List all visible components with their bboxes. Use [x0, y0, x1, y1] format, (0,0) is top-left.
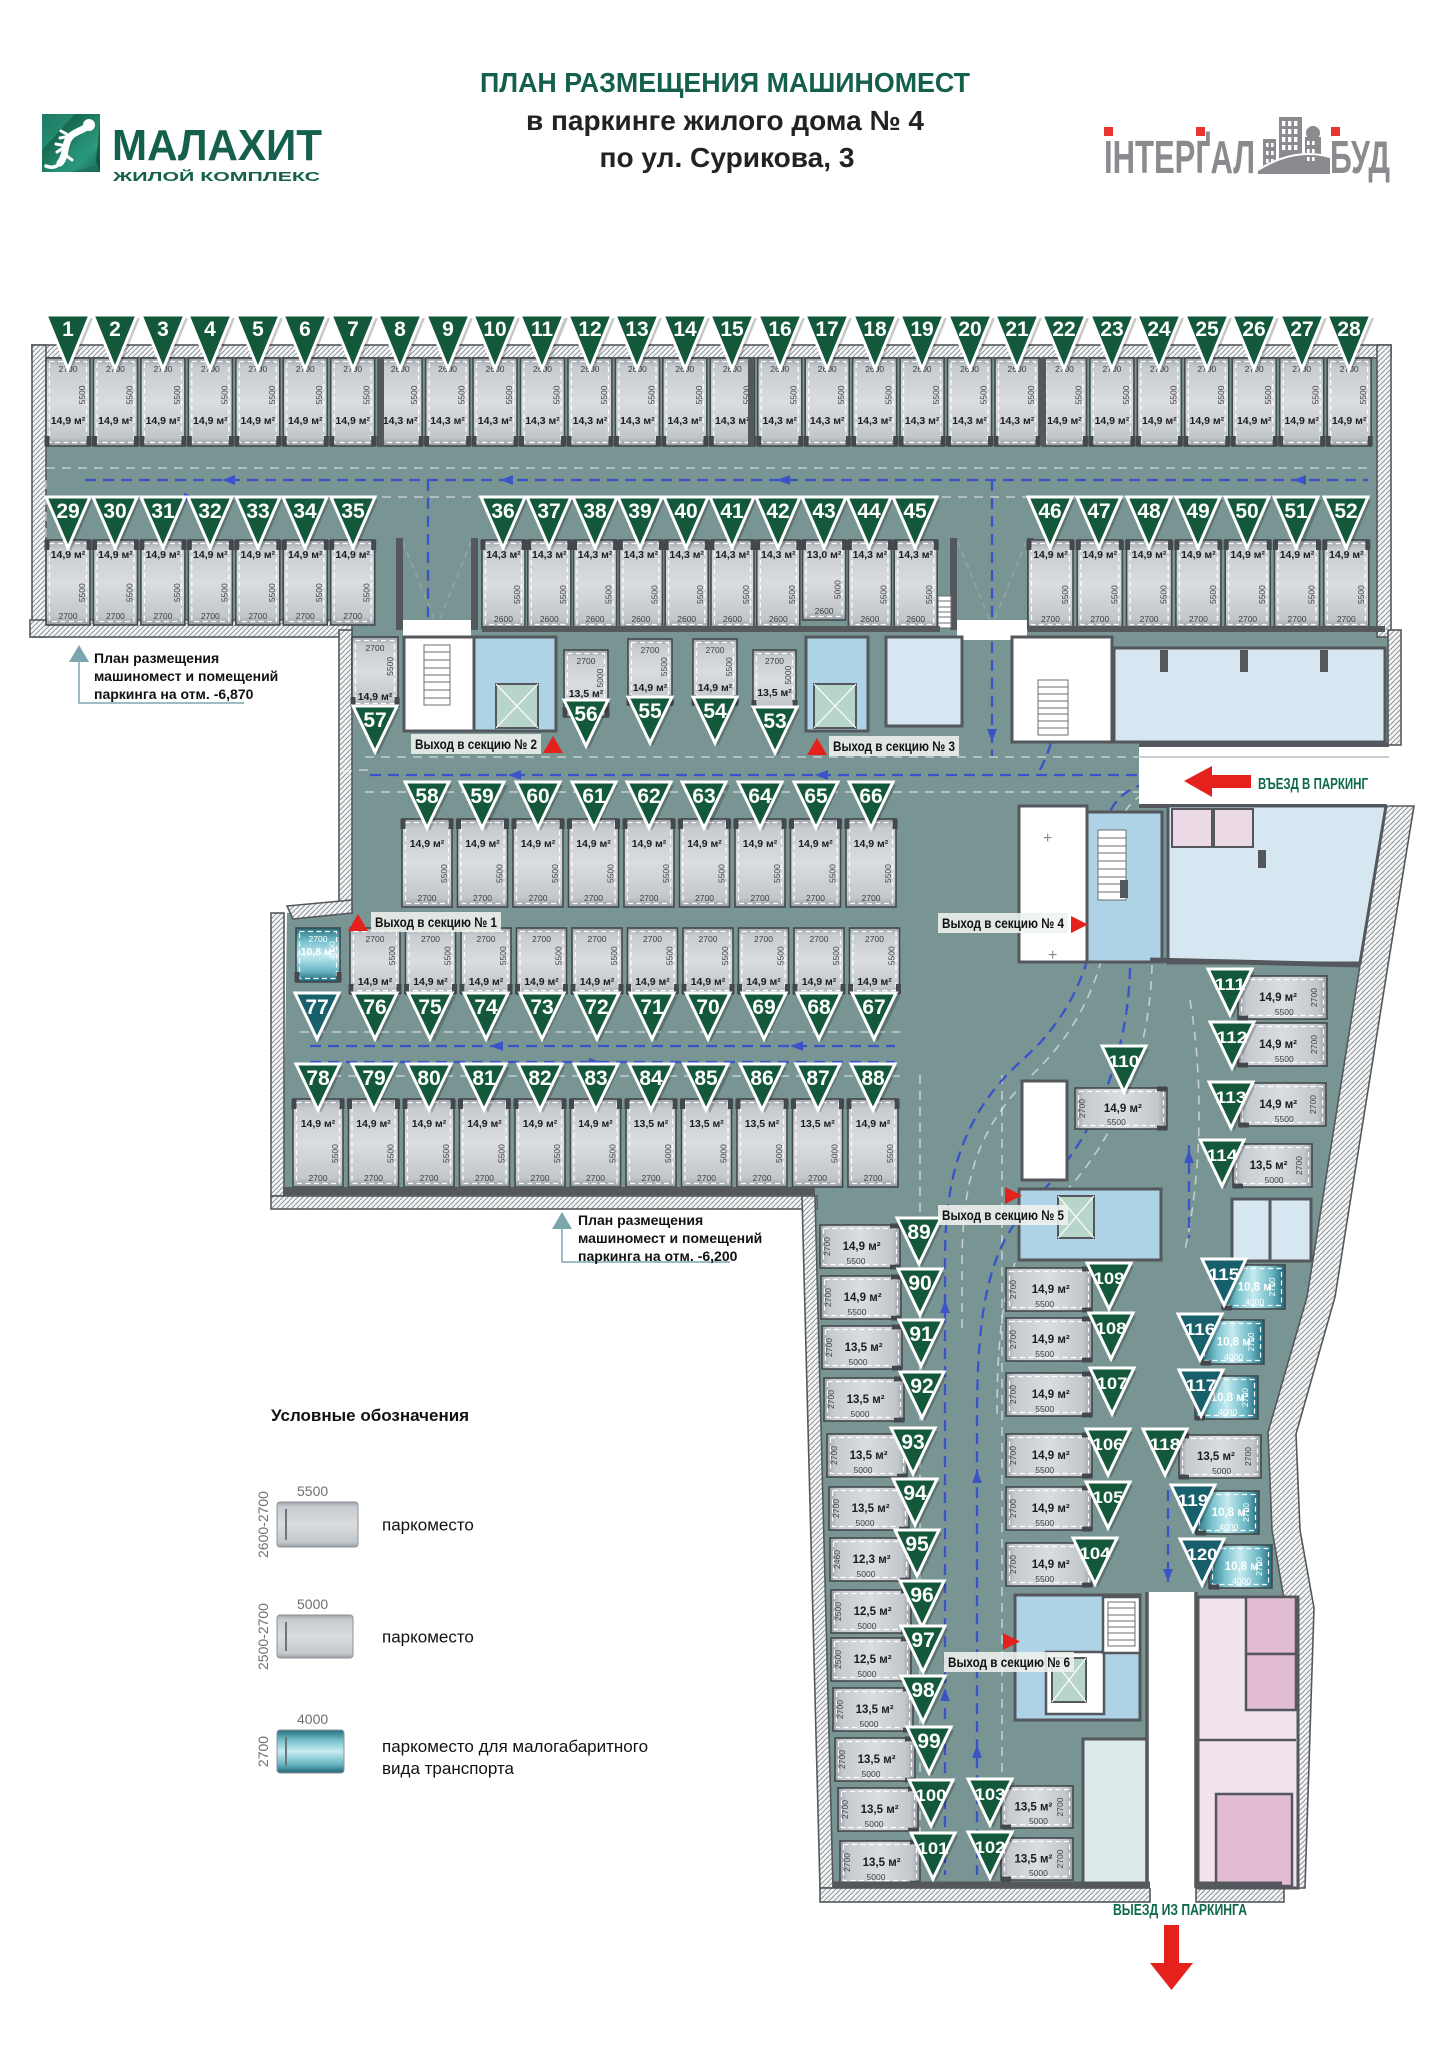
svg-text:14,3 м²: 14,3 м² [532, 549, 567, 561]
svg-text:57: 57 [363, 709, 386, 732]
svg-text:в паркинге жилого дома № 4: в паркинге жилого дома № 4 [526, 105, 924, 136]
svg-text:14: 14 [673, 318, 697, 341]
svg-text:46: 46 [1038, 500, 1061, 523]
svg-text:91: 91 [909, 1323, 933, 1346]
svg-text:22: 22 [1052, 318, 1075, 341]
svg-text:33: 33 [246, 500, 269, 523]
svg-text:23: 23 [1100, 318, 1123, 341]
svg-text:2700: 2700 [473, 893, 492, 903]
svg-text:Выход в секцию № 4: Выход в секцию № 4 [942, 915, 1064, 931]
svg-text:5500: 5500 [439, 864, 449, 883]
svg-text:110: 110 [1109, 1052, 1140, 1071]
svg-text:80: 80 [417, 1067, 440, 1090]
svg-text:53: 53 [763, 710, 786, 733]
svg-text:13,5 м²: 13,5 м² [689, 1118, 724, 1130]
svg-text:5500: 5500 [878, 585, 888, 604]
svg-text:14,9 м²: 14,9 м² [691, 976, 726, 988]
svg-text:61: 61 [582, 785, 606, 808]
svg-text:паркоместо: паркоместо [382, 1628, 474, 1647]
svg-text:5500: 5500 [498, 946, 508, 965]
svg-text:90: 90 [908, 1272, 931, 1295]
svg-text:14,9 м²: 14,9 м² [576, 838, 611, 850]
svg-text:2460: 2460 [832, 1550, 842, 1569]
svg-text:2700: 2700 [1008, 1280, 1018, 1299]
svg-text:2700: 2700 [588, 934, 607, 944]
svg-text:119: 119 [1178, 1491, 1209, 1510]
svg-text:14,9 м²: 14,9 м² [632, 838, 667, 850]
svg-text:5500: 5500 [1107, 1117, 1126, 1127]
svg-text:2700: 2700 [586, 1173, 605, 1183]
svg-text:26: 26 [1242, 318, 1265, 341]
svg-text:89: 89 [907, 1221, 930, 1244]
svg-text:12,3 м²: 12,3 м² [853, 1554, 891, 1566]
svg-text:83: 83 [584, 1067, 607, 1090]
svg-text:49: 49 [1186, 500, 1209, 523]
svg-text:5: 5 [252, 318, 264, 341]
svg-text:2700: 2700 [1337, 614, 1356, 624]
svg-text:5500: 5500 [297, 1483, 328, 1499]
svg-text:5500: 5500 [314, 583, 324, 602]
svg-text:14,9 м²: 14,9 м² [854, 838, 889, 850]
svg-text:5500: 5500 [931, 385, 941, 404]
svg-text:5500: 5500 [1356, 585, 1366, 604]
svg-text:14,9 м²: 14,9 м² [51, 415, 86, 427]
svg-text:2700: 2700 [640, 893, 659, 903]
svg-text:13,5 м²: 13,5 м² [800, 1118, 835, 1130]
svg-text:2700: 2700 [153, 611, 172, 621]
svg-text:2700: 2700 [106, 611, 125, 621]
svg-text:2700: 2700 [532, 934, 551, 944]
svg-text:5500: 5500 [77, 583, 87, 602]
svg-text:2700: 2700 [1055, 1849, 1065, 1868]
svg-text:5000: 5000 [851, 1409, 870, 1419]
svg-text:5500: 5500 [497, 1144, 507, 1163]
svg-text:93: 93 [901, 1431, 924, 1454]
svg-text:5500: 5500 [1159, 585, 1169, 604]
svg-text:2700: 2700 [584, 893, 603, 903]
svg-text:2700: 2700 [826, 1390, 836, 1409]
svg-text:14,3 м²: 14,3 м² [624, 549, 659, 561]
svg-text:54: 54 [703, 700, 727, 723]
svg-text:5500: 5500 [1168, 385, 1178, 404]
svg-text:84: 84 [639, 1067, 663, 1090]
svg-text:5000: 5000 [856, 1518, 875, 1528]
svg-text:85: 85 [694, 1067, 718, 1090]
svg-text:5500: 5500 [665, 946, 675, 965]
svg-text:2700: 2700 [824, 1338, 834, 1357]
svg-text:4000: 4000 [1232, 1576, 1251, 1586]
svg-text:14,9 м²: 14,9 м² [146, 415, 181, 427]
svg-text:5500: 5500 [646, 385, 656, 404]
svg-text:2700: 2700 [695, 893, 714, 903]
svg-text:118: 118 [1150, 1435, 1181, 1454]
svg-text:32: 32 [198, 500, 221, 523]
svg-text:14,9 м²: 14,9 м² [524, 976, 559, 988]
svg-text:13,5 м²: 13,5 м² [1014, 1854, 1052, 1866]
svg-text:5500: 5500 [979, 385, 989, 404]
svg-text:13,5 м²: 13,5 м² [856, 1704, 894, 1716]
svg-text:12,5 м²: 12,5 м² [854, 1606, 892, 1618]
svg-text:5500: 5500 [1307, 585, 1317, 604]
svg-text:14,9 м²: 14,9 м² [1047, 415, 1082, 427]
svg-text:47: 47 [1087, 500, 1110, 523]
svg-text:10,8 м²: 10,8 м² [1212, 1507, 1250, 1519]
svg-text:5000: 5000 [865, 1819, 884, 1829]
svg-text:2700: 2700 [529, 893, 548, 903]
svg-text:2700: 2700 [1294, 1156, 1304, 1175]
svg-text:17: 17 [815, 318, 838, 341]
svg-text:29: 29 [56, 500, 79, 523]
svg-text:14,9 м²: 14,9 м² [469, 976, 504, 988]
svg-text:2700: 2700 [864, 1173, 883, 1183]
svg-text:2500: 2500 [833, 1650, 843, 1669]
svg-text:14,9 м²: 14,9 м² [1032, 1334, 1070, 1346]
svg-text:5500: 5500 [847, 1256, 866, 1266]
svg-text:5500: 5500 [1109, 585, 1119, 604]
svg-text:2700: 2700 [642, 1173, 661, 1183]
svg-text:5500: 5500 [457, 385, 467, 404]
svg-text:104: 104 [1080, 1544, 1112, 1563]
svg-text:5500: 5500 [776, 946, 786, 965]
svg-text:2700: 2700 [309, 1173, 328, 1183]
svg-text:5000: 5000 [862, 1769, 881, 1779]
svg-text:5500: 5500 [552, 1144, 562, 1163]
svg-text:5500: 5500 [831, 946, 841, 965]
svg-text:2500-2700: 2500-2700 [255, 1603, 271, 1670]
svg-text:14,9 м²: 14,9 м² [1259, 1099, 1297, 1111]
svg-text:14,3 м²: 14,3 м² [761, 549, 796, 561]
svg-text:паркоместо: паркоместо [382, 1516, 474, 1535]
svg-text:14,3 м²: 14,3 м² [762, 415, 797, 427]
svg-text:101: 101 [918, 1839, 949, 1858]
svg-text:5500: 5500 [772, 864, 782, 883]
svg-text:паркоместо для малогабаритного: паркоместо для малогабаритного [382, 1737, 648, 1756]
svg-text:4000: 4000 [1245, 1297, 1264, 1307]
svg-text:14,9 м²: 14,9 м² [1259, 992, 1297, 1004]
svg-text:14,9 м²: 14,9 м² [358, 691, 393, 703]
svg-text:14,3 м²: 14,3 м² [669, 549, 704, 561]
svg-text:70: 70 [696, 996, 719, 1019]
svg-text:2700: 2700 [1008, 1555, 1018, 1574]
svg-text:5500: 5500 [124, 583, 134, 602]
svg-text:5500: 5500 [495, 864, 505, 883]
svg-text:72: 72 [585, 996, 608, 1019]
svg-text:2600: 2600 [677, 614, 696, 624]
svg-text:4000: 4000 [1224, 1352, 1243, 1362]
svg-text:14,3 м²: 14,3 м² [952, 415, 987, 427]
svg-text:2700: 2700 [643, 934, 662, 944]
svg-text:2700: 2700 [1090, 614, 1109, 624]
svg-text:10,8 м²: 10,8 м² [1225, 1561, 1263, 1573]
svg-text:88: 88 [861, 1067, 885, 1090]
svg-text:102: 102 [975, 1838, 1006, 1857]
svg-text:14,9 м²: 14,9 м² [1259, 1039, 1297, 1051]
svg-text:+: + [1048, 947, 1057, 964]
svg-text:113: 113 [1216, 1088, 1247, 1107]
svg-text:2700: 2700 [1140, 614, 1159, 624]
svg-text:14,3 м²: 14,3 м² [478, 415, 513, 427]
svg-text:2600: 2600 [769, 614, 788, 624]
svg-text:5000: 5000 [830, 1144, 840, 1163]
svg-text:14,3 м²: 14,3 м² [620, 415, 655, 427]
svg-text:14,9 м²: 14,9 м² [521, 838, 556, 850]
svg-text:116: 116 [1185, 1320, 1216, 1339]
svg-text:2700: 2700 [1243, 1447, 1253, 1466]
svg-text:14,9 м²: 14,9 м² [1104, 1103, 1142, 1115]
svg-text:14,9 м²: 14,9 м² [844, 1292, 882, 1304]
svg-text:14,9 м²: 14,9 м² [580, 976, 615, 988]
svg-text:2700: 2700 [808, 1173, 827, 1183]
svg-text:44: 44 [857, 500, 881, 523]
svg-text:2700: 2700 [840, 1800, 850, 1819]
svg-text:2700: 2700 [765, 656, 784, 666]
svg-text:14,9 м²: 14,9 м² [193, 549, 228, 561]
svg-text:2600: 2600 [494, 614, 513, 624]
svg-text:107: 107 [1097, 1374, 1128, 1393]
svg-text:5500: 5500 [1257, 585, 1267, 604]
svg-text:14,3 м²: 14,3 м² [1000, 415, 1035, 427]
svg-text:109: 109 [1094, 1269, 1125, 1288]
svg-text:25: 25 [1195, 318, 1219, 341]
svg-text:14,9 м²: 14,9 м² [857, 976, 892, 988]
svg-text:14,9 м²: 14,9 м² [1332, 415, 1367, 427]
svg-text:2700: 2700 [831, 1499, 841, 1518]
svg-text:69: 69 [752, 996, 775, 1019]
svg-text:2700: 2700 [531, 1173, 550, 1183]
svg-text:14,9 м²: 14,9 м² [698, 682, 733, 694]
svg-text:15: 15 [720, 318, 744, 341]
svg-text:13,5 м²: 13,5 м² [847, 1394, 885, 1406]
svg-text:5500: 5500 [848, 1307, 867, 1317]
svg-text:78: 78 [306, 1067, 330, 1090]
svg-text:2700: 2700 [823, 1288, 833, 1307]
svg-text:5000: 5000 [858, 1669, 877, 1679]
svg-text:35: 35 [341, 500, 365, 523]
svg-text:13,5 м²: 13,5 м² [858, 1754, 896, 1766]
svg-text:5000: 5000 [849, 1357, 868, 1367]
svg-text:13,5 м²: 13,5 м² [861, 1804, 899, 1816]
svg-text:105: 105 [1093, 1488, 1124, 1507]
svg-text:2700: 2700 [475, 1173, 494, 1183]
svg-text:5500: 5500 [609, 946, 619, 965]
svg-text:2700: 2700 [806, 893, 825, 903]
svg-text:5500: 5500 [883, 864, 893, 883]
svg-text:5000: 5000 [783, 665, 793, 684]
svg-text:5000: 5000 [860, 1719, 879, 1729]
svg-text:2700: 2700 [296, 611, 315, 621]
svg-text:5500: 5500 [552, 385, 562, 404]
svg-text:13,5 м²: 13,5 м² [850, 1450, 888, 1462]
svg-text:58: 58 [415, 785, 439, 808]
svg-text:27: 27 [1290, 318, 1313, 341]
svg-text:13,5 м²: 13,5 м² [863, 1857, 901, 1869]
svg-text:5500: 5500 [386, 1144, 396, 1163]
svg-text:2700: 2700 [309, 934, 328, 944]
svg-text:13,5 м²: 13,5 м² [852, 1503, 890, 1515]
svg-text:2700: 2700 [1309, 1035, 1319, 1054]
svg-text:14,3 м²: 14,3 м² [430, 415, 465, 427]
svg-text:4: 4 [204, 318, 216, 341]
svg-text:2600: 2600 [723, 614, 742, 624]
svg-text:5500: 5500 [1121, 385, 1131, 404]
svg-text:11: 11 [531, 318, 554, 341]
svg-text:24: 24 [1147, 318, 1171, 341]
svg-text:5500: 5500 [219, 385, 229, 404]
svg-text:2700: 2700 [822, 1237, 832, 1256]
svg-text:5000: 5000 [297, 1596, 328, 1612]
svg-text:13,5 м²: 13,5 м² [1197, 1451, 1235, 1463]
svg-text:5500: 5500 [554, 946, 564, 965]
svg-text:73: 73 [530, 996, 553, 1019]
svg-text:43: 43 [812, 500, 835, 523]
svg-text:6: 6 [299, 318, 311, 341]
svg-text:2600-2700: 2600-2700 [255, 1491, 271, 1558]
svg-text:13,5 м²: 13,5 м² [745, 1118, 780, 1130]
svg-text:38: 38 [583, 500, 607, 523]
svg-text:114: 114 [1207, 1146, 1239, 1165]
svg-text:5000: 5000 [595, 668, 605, 687]
svg-text:5500: 5500 [608, 1144, 618, 1163]
svg-text:2700: 2700 [1055, 1797, 1065, 1816]
svg-text:37: 37 [537, 500, 560, 523]
svg-text:4000: 4000 [297, 1711, 328, 1727]
svg-text:5500: 5500 [720, 946, 730, 965]
svg-text:95: 95 [905, 1533, 929, 1556]
svg-text:5500: 5500 [885, 1144, 895, 1163]
svg-text:94: 94 [903, 1482, 927, 1505]
svg-text:5500: 5500 [661, 864, 671, 883]
svg-text:66: 66 [859, 785, 882, 808]
svg-text:10: 10 [483, 318, 506, 341]
svg-text:5500: 5500 [1060, 585, 1070, 604]
svg-text:40: 40 [674, 500, 697, 523]
svg-text:2700: 2700 [842, 1853, 852, 1872]
svg-text:14,9 м²: 14,9 м² [1095, 415, 1130, 427]
svg-text:36: 36 [491, 500, 514, 523]
svg-text:112: 112 [1217, 1028, 1248, 1047]
svg-text:2700: 2700 [865, 934, 884, 944]
svg-text:5500: 5500 [1263, 385, 1273, 404]
svg-text:машиномест и помещений: машиномест и помещений [94, 668, 278, 684]
svg-text:10,8 м²: 10,8 м² [1217, 1337, 1255, 1349]
svg-text:87: 87 [806, 1067, 829, 1090]
svg-text:5500: 5500 [659, 657, 669, 676]
svg-text:2700: 2700 [343, 611, 362, 621]
svg-text:5500: 5500 [1275, 1007, 1294, 1017]
svg-text:5500: 5500 [1026, 385, 1036, 404]
svg-text:81: 81 [472, 1067, 496, 1090]
svg-text:5500: 5500 [1275, 1054, 1294, 1064]
svg-text:14,9 м²: 14,9 м² [1181, 549, 1216, 561]
svg-text:5500: 5500 [787, 585, 797, 604]
svg-text:76: 76 [363, 996, 386, 1019]
svg-text:5500: 5500 [558, 585, 568, 604]
svg-text:14,9 м²: 14,9 м² [1230, 549, 1265, 561]
svg-text:2: 2 [109, 318, 121, 341]
svg-text:5500: 5500 [172, 385, 182, 404]
svg-text:45: 45 [903, 500, 927, 523]
svg-text:14,9 м²: 14,9 м² [98, 415, 133, 427]
svg-text:115: 115 [1209, 1265, 1240, 1284]
svg-text:5000: 5000 [1029, 1816, 1048, 1826]
svg-text:5500: 5500 [1358, 385, 1368, 404]
svg-text:План размещения: План размещения [578, 1212, 703, 1228]
svg-text:28: 28 [1337, 318, 1361, 341]
svg-text:2700: 2700 [697, 1173, 716, 1183]
svg-text:14,9 м²: 14,9 м² [856, 1118, 891, 1130]
svg-text:59: 59 [470, 785, 493, 808]
svg-text:106: 106 [1093, 1435, 1124, 1454]
svg-text:14,3 м²: 14,3 м² [810, 415, 845, 427]
svg-text:5000: 5000 [854, 1465, 873, 1475]
svg-text:12,5 м²: 12,5 м² [854, 1654, 892, 1666]
svg-text:97: 97 [911, 1629, 934, 1652]
svg-text:5500: 5500 [604, 585, 614, 604]
svg-text:2700: 2700 [829, 1446, 839, 1465]
svg-text:2700: 2700 [248, 611, 267, 621]
svg-text:14,9 м²: 14,9 м² [1284, 415, 1319, 427]
svg-text:14,9 м²: 14,9 м² [1032, 1559, 1070, 1571]
svg-text:5500: 5500 [77, 385, 87, 404]
svg-text:Выход в секцию № 2: Выход в секцию № 2 [415, 736, 537, 752]
svg-text:16: 16 [768, 318, 791, 341]
svg-text:5500: 5500 [884, 385, 894, 404]
svg-text:5500: 5500 [409, 385, 419, 404]
svg-text:2700: 2700 [1288, 614, 1307, 624]
svg-text:ВЪЕЗД В ПАРКИНГ: ВЪЕЗД В ПАРКИНГ [1258, 776, 1368, 793]
svg-text:1: 1 [62, 318, 74, 341]
svg-text:20: 20 [958, 318, 981, 341]
svg-text:14,9 м²: 14,9 м² [1032, 1389, 1070, 1401]
svg-text:14,3 м²: 14,3 м² [486, 549, 521, 561]
svg-text:2700: 2700 [835, 1700, 845, 1719]
svg-text:14,9 м²: 14,9 м² [240, 415, 275, 427]
svg-text:86: 86 [750, 1067, 773, 1090]
svg-text:12: 12 [578, 318, 601, 341]
svg-text:14,3 м²: 14,3 м² [525, 415, 560, 427]
svg-text:2600: 2600 [631, 614, 650, 624]
svg-text:82: 82 [528, 1067, 551, 1090]
svg-text:5500: 5500 [441, 1144, 451, 1163]
svg-text:31: 31 [151, 500, 175, 523]
svg-text:План размещения: План размещения [94, 650, 219, 666]
svg-text:5500: 5500 [717, 864, 727, 883]
svg-text:14,9 м²: 14,9 м² [633, 682, 668, 694]
svg-text:79: 79 [362, 1067, 385, 1090]
svg-text:41: 41 [720, 500, 744, 523]
svg-text:14,3 м²: 14,3 м² [715, 415, 750, 427]
svg-text:62: 62 [637, 785, 660, 808]
svg-text:5500: 5500 [789, 385, 799, 404]
svg-text:14,9 м²: 14,9 м² [410, 838, 445, 850]
svg-text:2700: 2700 [366, 934, 385, 944]
svg-text:68: 68 [807, 996, 831, 1019]
svg-text:5500: 5500 [599, 385, 609, 404]
svg-text:13,5 м²: 13,5 м² [569, 688, 604, 700]
svg-text:42: 42 [766, 500, 789, 523]
svg-text:5000: 5000 [858, 1621, 877, 1631]
svg-text:5000: 5000 [833, 580, 843, 599]
svg-text:5000: 5000 [867, 1872, 886, 1882]
svg-text:5500: 5500 [924, 585, 934, 604]
svg-text:5500: 5500 [172, 583, 182, 602]
svg-text:2700: 2700 [862, 893, 881, 903]
svg-text:5500: 5500 [314, 385, 324, 404]
svg-text:14,9 м²: 14,9 м² [1142, 415, 1177, 427]
svg-text:5500: 5500 [741, 585, 751, 604]
svg-text:5500: 5500 [124, 385, 134, 404]
svg-text:Выход в секцию № 6: Выход в секцию № 6 [948, 1654, 1070, 1670]
